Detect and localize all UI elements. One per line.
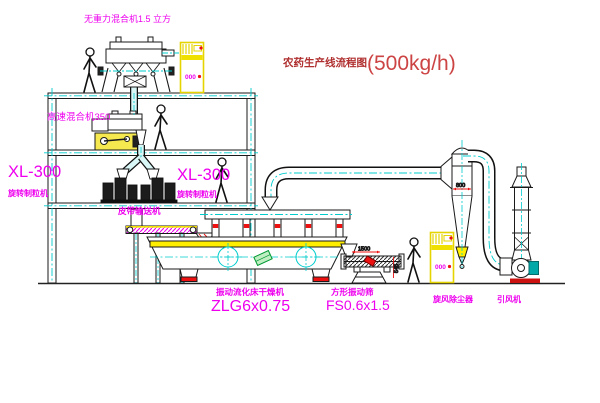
dim-545: 545 xyxy=(394,264,400,273)
label-dryer-model: ZLG6x0.75 xyxy=(211,298,290,315)
fan-base xyxy=(510,279,540,284)
dryer-suspension-posts xyxy=(212,219,343,237)
label-fan: 引风机 xyxy=(497,294,521,304)
label-high-speed-mixer: 高速混合机350 xyxy=(47,111,110,123)
person-floor2 xyxy=(155,105,167,149)
dim-1500: 1500 xyxy=(358,247,370,253)
rotary-granulators xyxy=(101,169,177,203)
label-granulator-left-model: XL-300 xyxy=(8,163,61,181)
fan-motor xyxy=(529,262,539,275)
induced-draft-fan xyxy=(500,258,540,283)
label-granulator-left-name: 旋转制粒机 xyxy=(7,188,48,198)
exhaust-duct xyxy=(262,157,452,210)
granulator-left-machine xyxy=(101,178,139,203)
person-roof xyxy=(84,48,96,92)
diagram-canvas: 000 xyxy=(0,0,600,403)
label-cyclone: 旋风除尘器 xyxy=(432,294,474,304)
control-cabinet-ground xyxy=(431,233,454,283)
label-dryer-name: 振动流化床干燥机 xyxy=(216,287,285,297)
gravity-free-mixer xyxy=(98,37,179,117)
granulator-right-machine xyxy=(139,178,177,203)
label-gravity-mixer: 无重力混合机1.5 立方 xyxy=(84,13,171,24)
title-capacity: (500kg/h) xyxy=(367,52,456,75)
label-granulator-right-model: XL-300 xyxy=(177,166,230,184)
person-ground xyxy=(408,238,420,282)
flow-diagram-page: 000 xyxy=(0,0,600,403)
control-cabinet-roof xyxy=(181,43,204,93)
square-vibrating-screen: 1500 545 xyxy=(341,244,404,283)
label-screen-model: FS0.6x1.5 xyxy=(326,297,390,313)
page-title: 农药生产线流程图 xyxy=(282,56,367,69)
label-screen-name: 方形振动筛 xyxy=(331,287,374,297)
label-belt-conveyor: 皮带输送机 xyxy=(117,206,161,216)
dim-800: 800 xyxy=(456,183,465,189)
label-granulator-right-name: 旋转制粒机 xyxy=(176,189,217,199)
